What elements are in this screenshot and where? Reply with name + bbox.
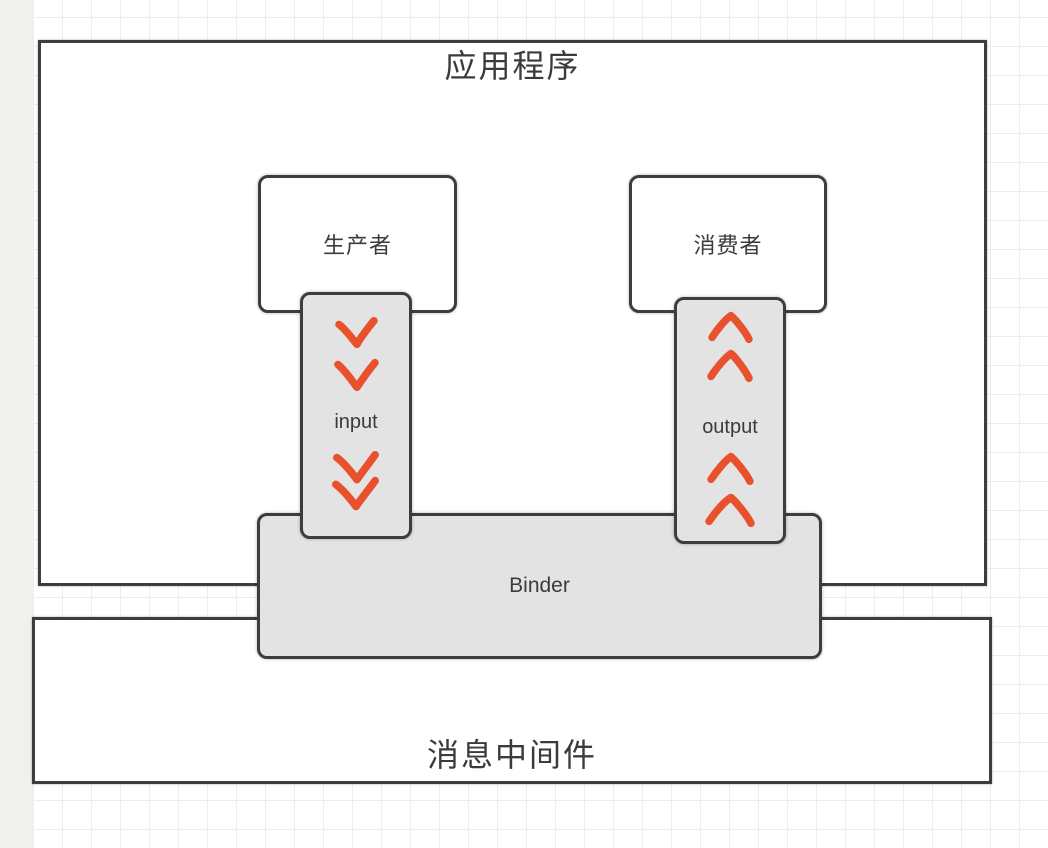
input-channel: input [300,292,412,539]
double-chevron-down-icon [329,450,383,517]
consumer-box: 消费者 [629,175,827,313]
application-box: 应用程序 [38,40,987,586]
binder-label: Binder [509,574,570,598]
chevron-down-icon [331,357,381,393]
chevron-up-icon [705,310,755,344]
output-channel: output [674,297,786,544]
application-title: 应用程序 [41,48,984,85]
input-channel-label: input [303,410,409,434]
chevron-up-icon [705,347,755,383]
chevron-down-icon [331,316,381,350]
chevron-up-icon [704,451,756,485]
consumer-label: 消费者 [693,228,762,260]
output-channel-label: output [677,415,783,439]
producer-label: 生产者 [323,228,392,260]
diagram-canvas: 应用程序 消息中间件 生产者 消费者 Binder input [0,0,1048,848]
page-margin-strip [0,0,33,848]
chevron-up-icon [702,490,758,528]
middleware-label: 消息中间件 [35,730,989,776]
